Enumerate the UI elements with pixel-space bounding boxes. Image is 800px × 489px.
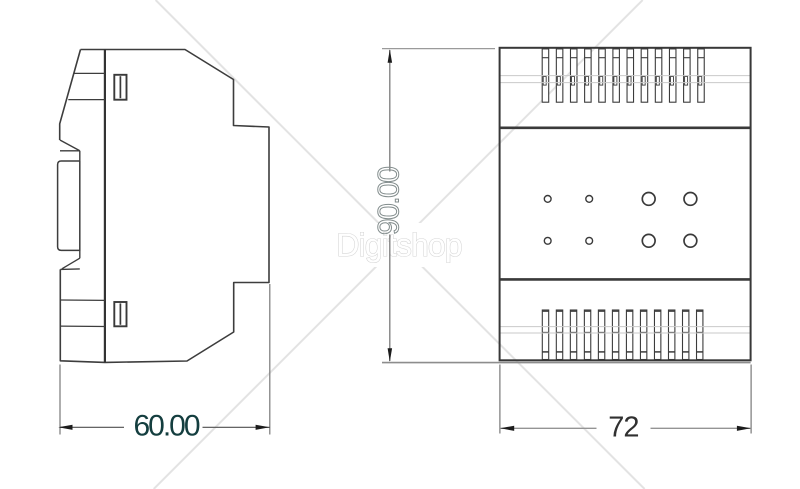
svg-text:60.00: 60.00 [133,410,199,443]
svg-text:90.00: 90.00 [373,167,406,235]
svg-text:72: 72 [608,412,638,444]
